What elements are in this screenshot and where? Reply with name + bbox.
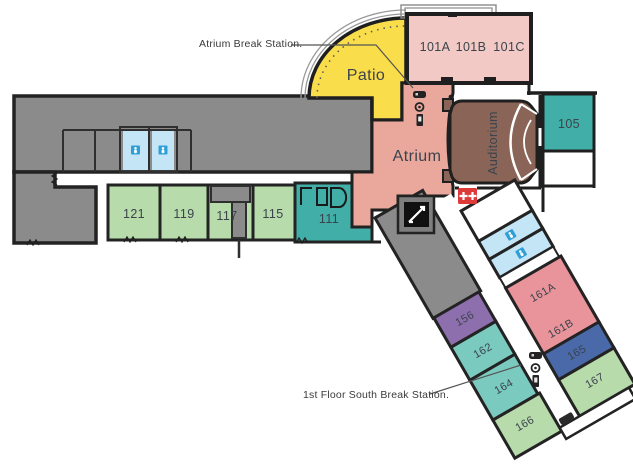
room-119[interactable] <box>160 185 208 240</box>
area-auditorium[interactable] <box>443 99 537 183</box>
door-icon <box>448 12 457 17</box>
room-101-block[interactable] <box>407 14 531 83</box>
stairwell[interactable] <box>398 196 434 233</box>
room-115[interactable] <box>253 185 295 240</box>
annotation-south-break-station: 1st Floor South Break Station. <box>303 389 449 401</box>
door-icon <box>484 77 496 84</box>
restroom-icon <box>159 146 168 155</box>
door-icon <box>441 77 453 84</box>
room-unlabeled-105b[interactable] <box>543 151 594 186</box>
room-105[interactable] <box>543 94 594 151</box>
restroom-icon <box>131 146 140 155</box>
annotation-atrium-break-station: Atrium Break Station. <box>199 38 302 50</box>
room-121[interactable] <box>108 185 160 240</box>
first-aid-icon <box>458 188 477 204</box>
floor-plan-canvas: Patio Atrium Auditorium 101A 101B 101C 1… <box>0 0 633 465</box>
west-wing-gray-block[interactable] <box>14 96 372 172</box>
west-wing-gray-lower[interactable] <box>14 172 96 243</box>
south-wing <box>375 147 633 465</box>
